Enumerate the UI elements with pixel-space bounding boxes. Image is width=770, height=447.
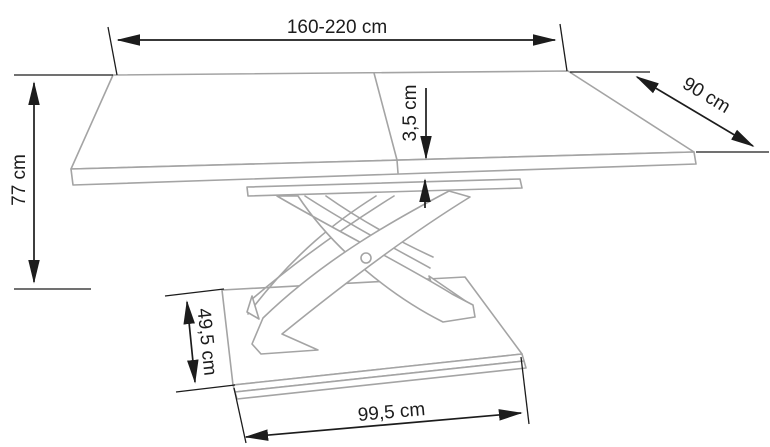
table-dimension-diagram: 160-220 cm 90 cm 77 cm 3,5 cm 49,5 (0, 0, 770, 447)
extension-line (108, 27, 117, 75)
diagram-canvas: 160-220 cm 90 cm 77 cm 3,5 cm 49,5 (0, 0, 770, 447)
dimension-label-table-depth: 90 cm (679, 73, 734, 118)
dimension-label-base-depth: 49,5 cm (193, 307, 221, 376)
dimension-label-table-length: 160-220 cm (287, 17, 387, 38)
dimension-label-top-thickness: 3,5 cm (400, 84, 421, 141)
dimension-table-length: 160-220 cm (108, 17, 567, 75)
table-apron (247, 179, 522, 196)
table-top-seam-front-face (397, 160, 398, 173)
table-top (71, 71, 696, 185)
extension-line (560, 24, 567, 71)
extension-line (165, 289, 224, 296)
dimension-label-table-height: 77 cm (9, 154, 30, 206)
pivot-bolt (361, 253, 371, 263)
extension-line (176, 385, 235, 392)
